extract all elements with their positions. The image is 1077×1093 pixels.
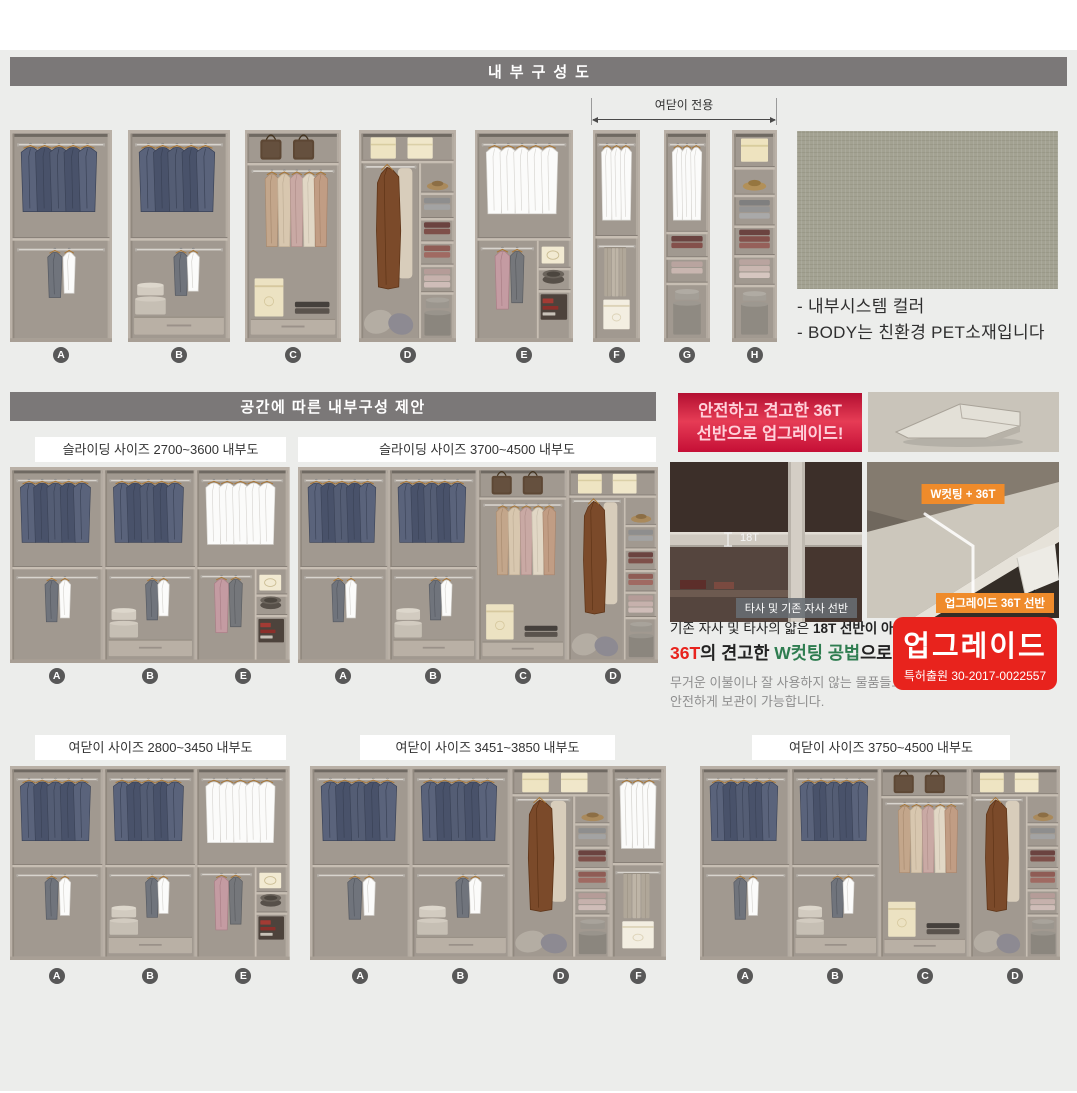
diagram-letter-badge-sliding-3700-4500-D: D — [605, 668, 621, 684]
promo-36t-banner: 안전하고 견고한 36T 선반으로 업그레이드! — [678, 393, 862, 452]
diagram-hinged-2800-3450 — [10, 766, 290, 960]
diagram-module-D — [567, 467, 659, 663]
diagram-letter-badge-sliding-2700-3600-E: E — [235, 668, 251, 684]
wardrobe-unit-G — [664, 130, 710, 342]
old-shelf-caption: 타사 및 기존 자사 선반 — [736, 598, 857, 618]
promo-desc-body1: 무거운 이불이나 잘 사용하지 않는 물품들도 — [670, 674, 888, 693]
desc-text-part: 36T — [670, 643, 700, 663]
diagram-sliding-3700-4500 — [298, 467, 658, 663]
diagram-letter-badge-hinged-2800-3450-A: A — [49, 968, 65, 984]
diagram-module-A — [298, 467, 390, 663]
wardrobe-unit-B — [128, 130, 230, 342]
wardrobe-unit-F — [593, 130, 640, 342]
diagram-letter-badge-hinged-3451-3850-D: D — [553, 968, 569, 984]
diagram-label-hinged-3451-3850: 여닫이 사이즈 3451~3850 내부도 — [360, 735, 615, 760]
bracket-arrowhead-left — [592, 117, 598, 123]
diagram-module-E — [195, 467, 290, 663]
diagram-letter-badge-hinged-3451-3850-A: A — [352, 968, 368, 984]
shelf-piece-illustration — [868, 392, 1059, 452]
hinged-only-bracket: 여닫이 전용 — [591, 98, 777, 125]
diagram-label-sliding-2700-3600: 슬라이딩 사이즈 2700~3600 내부도 — [35, 437, 286, 462]
wardrobe-unit-H — [732, 130, 777, 342]
unit-letter-badge-F: F — [609, 347, 625, 363]
diagram-letter-badge-hinged-2800-3450-B: B — [142, 968, 158, 984]
diagram-module-B — [410, 766, 512, 960]
desc-text-part: 18T 선반이 아닌 — [813, 621, 906, 636]
old-shelf-photo: 18T 타사 및 기존 자사 선반 — [670, 462, 862, 622]
new-shelf-photo: W컷팅 + 36T 업그레이드 36T 선반 — [867, 462, 1059, 618]
promo-desc-line1: 기존 자사 및 타사의 얇은 18T 선반이 아닌 — [670, 617, 888, 637]
new-shelf-caption: 업그레이드 36T 선반 — [936, 593, 1054, 613]
diagram-letter-badge-sliding-3700-4500-B: B — [425, 668, 441, 684]
promo-description: 기존 자사 및 타사의 얇은 18T 선반이 아닌 36T의 견고한 W컷팅 공… — [670, 617, 888, 712]
unit-letter-badge-G: G — [679, 347, 695, 363]
diagram-module-E — [195, 766, 290, 960]
catalog-content-area: 내부구성도 여닫이 전용 ABCDEFGH - 내부시스템 컬러 - BODY는… — [0, 50, 1077, 1091]
diagram-label-sliding-3700-4500: 슬라이딩 사이즈 3700~4500 내부도 — [298, 437, 656, 462]
section-header-suggest: 공간에 따른 내부구성 제안 — [10, 392, 656, 421]
section-header-suggest-text: 공간에 따른 내부구성 제안 — [240, 396, 425, 417]
diagram-letter-badge-hinged-3451-3850-F: F — [630, 968, 646, 984]
promo-headline-line1: 안전하고 견고한 36T — [698, 400, 842, 422]
swatch-note-color: - 내부시스템 컬러 — [797, 292, 925, 317]
bracket-arrowhead-right — [770, 117, 776, 123]
wardrobe-catalog-page: 내부구성도 여닫이 전용 ABCDEFGH - 내부시스템 컬러 - BODY는… — [0, 0, 1077, 1093]
diagram-letter-badge-sliding-2700-3600-A: A — [49, 668, 65, 684]
diagram-letter-badge-sliding-3700-4500-A: A — [335, 668, 351, 684]
unit-letter-badge-E: E — [516, 347, 532, 363]
diagram-module-A — [10, 766, 105, 960]
wardrobe-unit-E — [475, 130, 573, 342]
patent-badge-number: 특허출원 30-2017-0022557 — [904, 667, 1046, 684]
diagram-letter-badge-hinged-3750-4500-C: C — [917, 968, 933, 984]
diagram-label-hinged-3750-4500: 여닫이 사이즈 3750~4500 내부도 — [752, 735, 1010, 760]
diagram-module-C — [879, 766, 971, 960]
diagram-module-A — [700, 766, 792, 960]
bracket-label: 여닫이 전용 — [591, 96, 777, 113]
bracket-arrow-line — [593, 119, 775, 120]
diagram-sliding-2700-3600 — [10, 467, 290, 663]
diagram-module-B — [790, 766, 882, 960]
diagram-module-D — [969, 766, 1061, 960]
desc-text-part: 기존 자사 및 타사의 얇은 — [670, 621, 813, 636]
promo-headline-line2: 선반으로 업그레이드! — [697, 423, 844, 445]
wardrobe-unit-C — [245, 130, 341, 342]
interior-color-swatch — [797, 131, 1058, 289]
diagram-letter-badge-hinged-3750-4500-B: B — [827, 968, 843, 984]
diagram-module-A — [310, 766, 412, 960]
diagram-letter-badge-sliding-2700-3600-B: B — [142, 668, 158, 684]
patent-badge-title: 업그레이드 — [903, 623, 1046, 665]
unit-letter-badge-A: A — [53, 347, 69, 363]
section-header-internal-text: 내부구성도 — [480, 61, 597, 82]
diagram-letter-badge-hinged-2800-3450-E: E — [235, 968, 251, 984]
wardrobe-unit-A — [10, 130, 112, 342]
desc-text-part: 으로 — [860, 643, 892, 663]
unit-letter-badge-B: B — [171, 347, 187, 363]
swatch-note-body: - BODY는 친환경 PET소재입니다 — [797, 318, 1045, 343]
diagram-hinged-3750-4500 — [700, 766, 1060, 960]
diagram-module-B — [103, 467, 198, 663]
diagram-module-A — [10, 467, 105, 663]
unit-letter-badge-D: D — [400, 347, 416, 363]
diagram-letter-badge-hinged-3750-4500-D: D — [1007, 968, 1023, 984]
unit-letter-badge-H: H — [747, 347, 763, 363]
desc-text-part: W컷팅 공법 — [774, 643, 860, 663]
upgrade-patent-badge: 업그레이드 특허출원 30-2017-0022557 — [893, 617, 1057, 690]
promo-desc-body2: 안전하게 보관이 가능합니다. — [670, 693, 888, 712]
diagram-module-F — [610, 766, 666, 960]
wardrobe-unit-D — [359, 130, 456, 342]
diagram-letter-badge-sliding-3700-4500-C: C — [515, 668, 531, 684]
section-header-internal: 내부구성도 — [10, 57, 1067, 86]
diagram-module-B — [103, 766, 198, 960]
diagram-module-C — [477, 467, 569, 663]
diagram-module-D — [510, 766, 612, 960]
old-shelf-18t-tag: 18T — [740, 532, 759, 544]
desc-text-part: 의 견고한 — [700, 643, 774, 663]
diagram-letter-badge-hinged-3451-3850-B: B — [452, 968, 468, 984]
diagram-label-hinged-2800-3450: 여닫이 사이즈 2800~3450 내부도 — [35, 735, 286, 760]
unit-letter-badge-C: C — [285, 347, 301, 363]
promo-desc-line2: 36T의 견고한 W컷팅 공법으로 — [670, 640, 888, 665]
new-shelf-wcut-tag: W컷팅 + 36T — [922, 484, 1005, 504]
diagram-hinged-3451-3850 — [310, 766, 666, 960]
shelf-piece-photo — [868, 392, 1059, 452]
diagram-letter-badge-hinged-3750-4500-A: A — [737, 968, 753, 984]
diagram-module-B — [388, 467, 480, 663]
